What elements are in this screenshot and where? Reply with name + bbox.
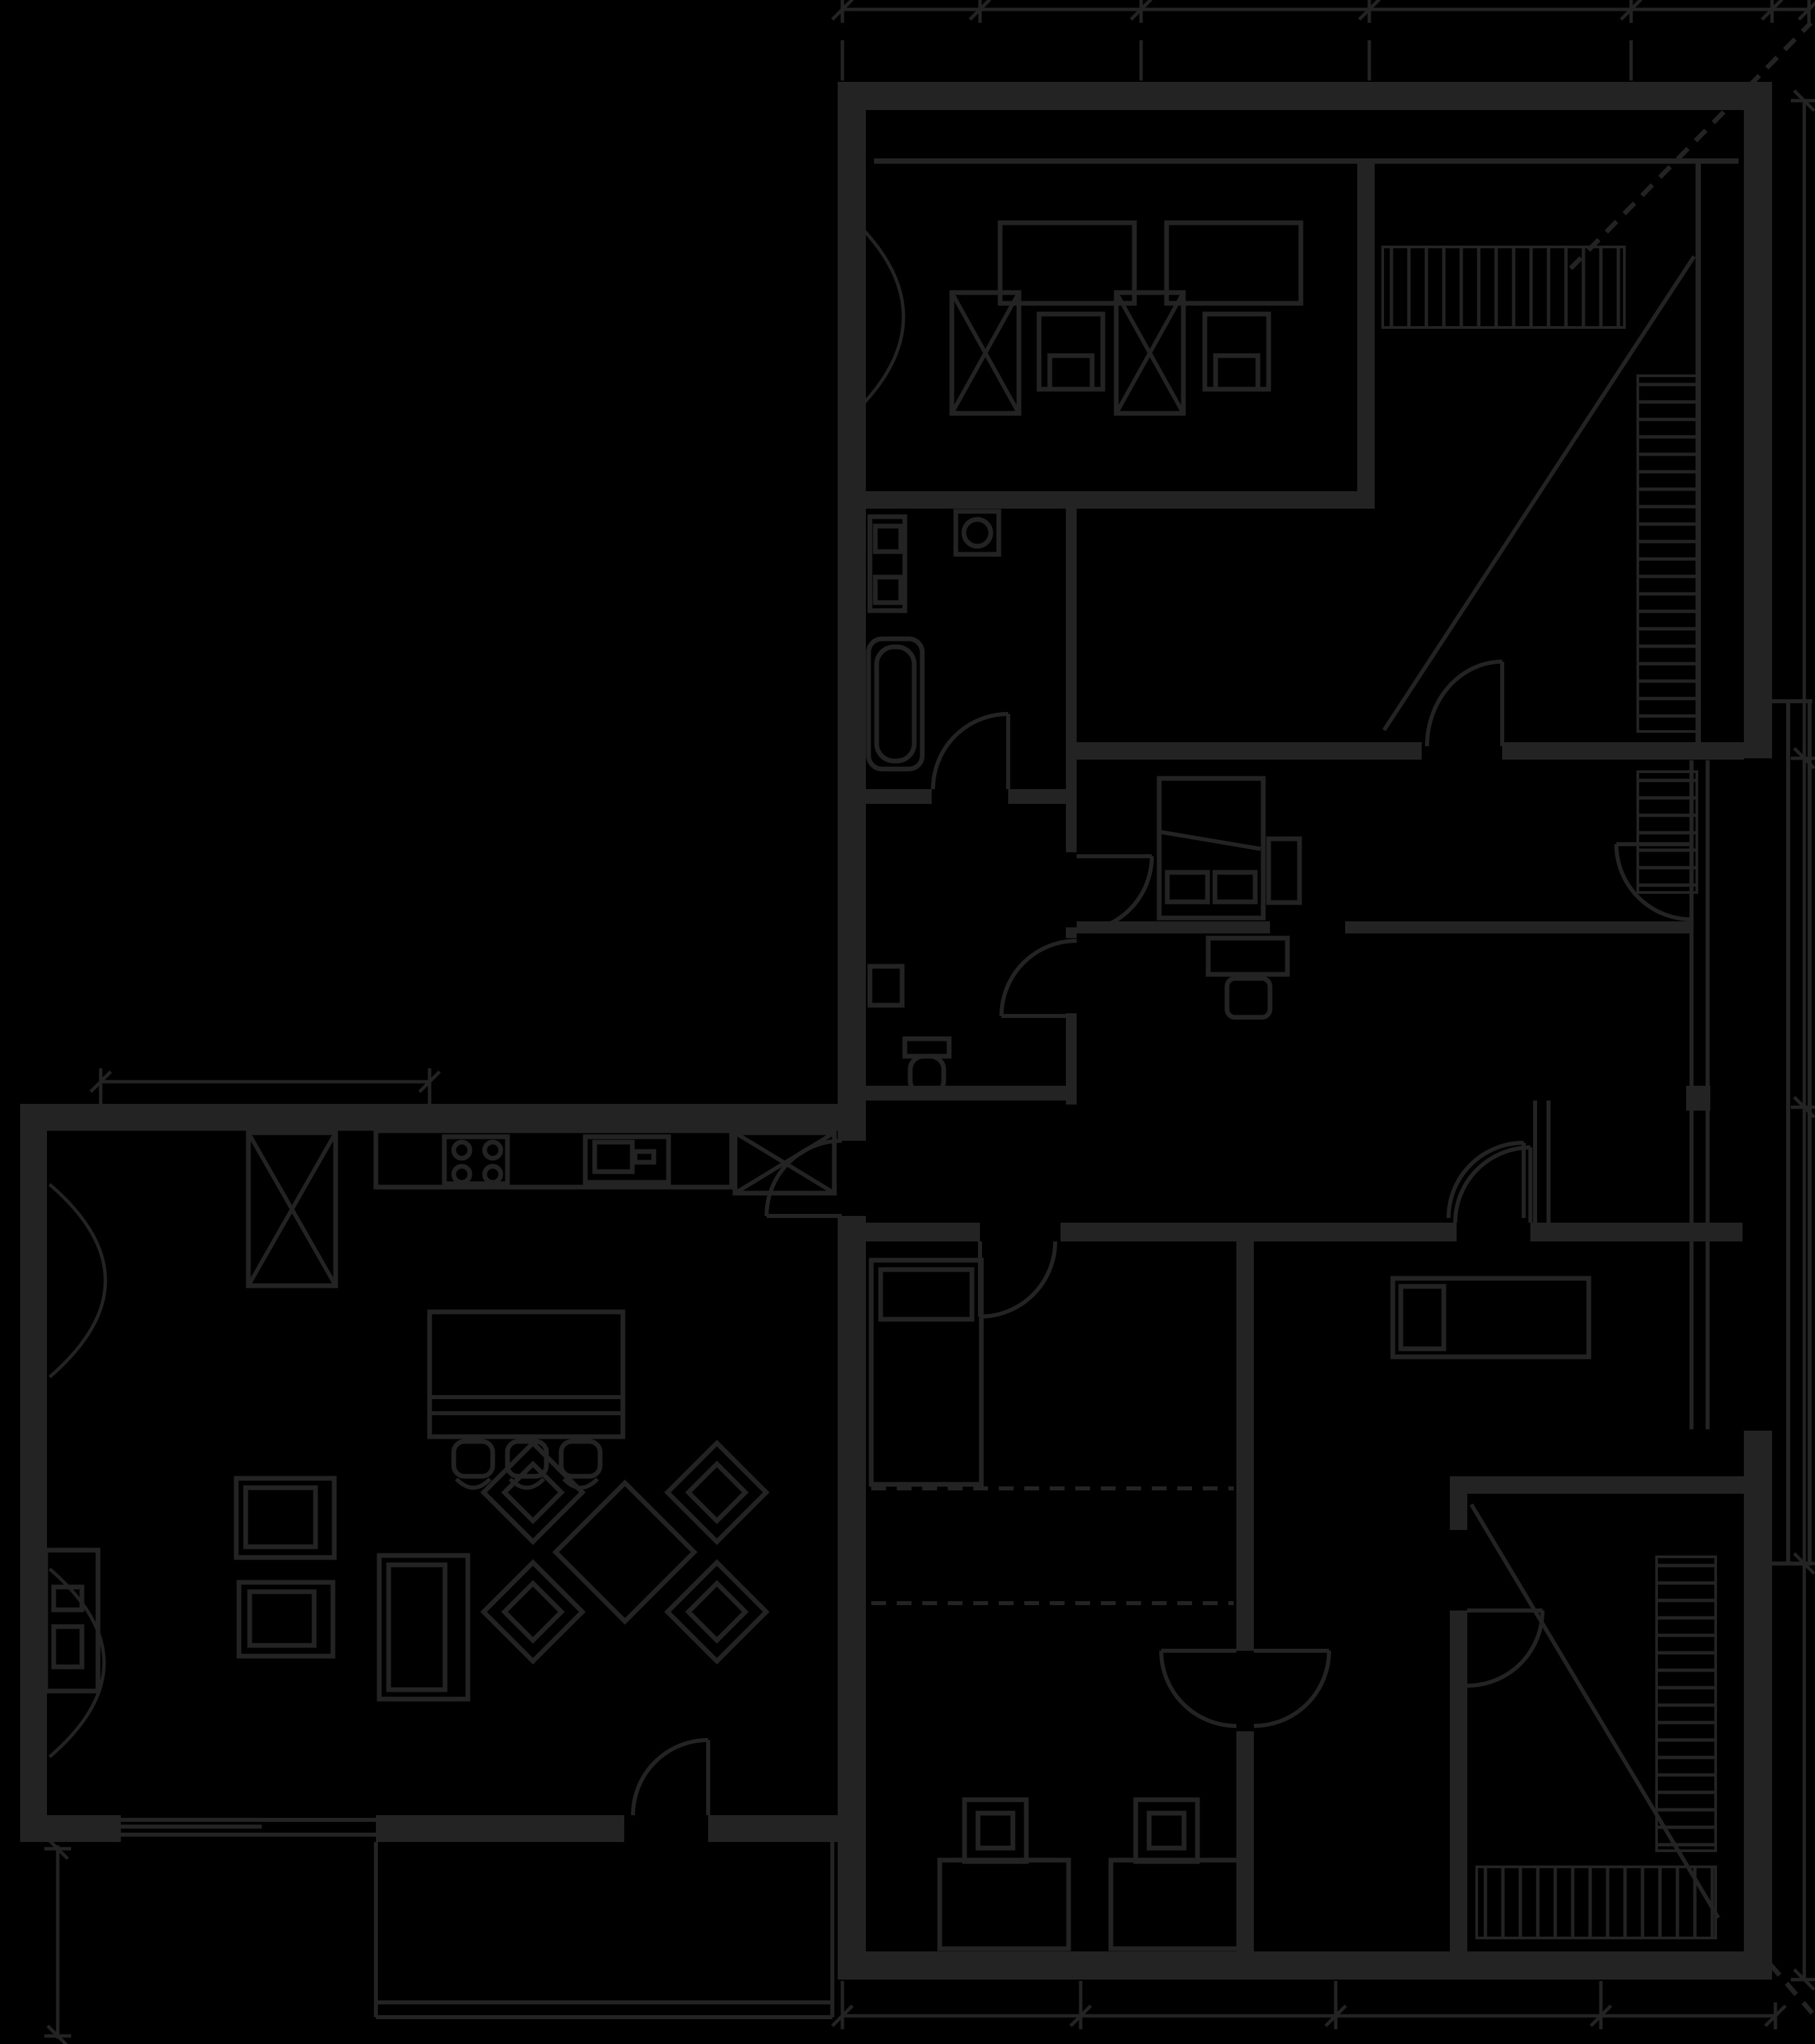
dining-chair-2 (667, 1443, 766, 1541)
bed-kid-left (871, 1260, 981, 1484)
sofa-seat (389, 1565, 445, 1690)
wall-rightwing-left-lower (838, 1216, 866, 1980)
kitchen-counter (376, 1131, 732, 1187)
sideboard-drawer-2 (54, 1627, 82, 1667)
bar-stool-3 (561, 1441, 600, 1476)
stool-study-1-seat (1050, 356, 1092, 389)
wc-sink (870, 966, 902, 1005)
wall-kids-divider-a (1236, 1241, 1254, 1651)
burner-1 (454, 1142, 470, 1158)
floor-plan-page (0, 0, 1815, 2044)
door-kid-left-arc (980, 1241, 1055, 1317)
chair-office (1227, 978, 1270, 1017)
bath-sink-1 (875, 526, 901, 552)
wall-leftwing-bottom-a (20, 1815, 121, 1842)
door-balcony-bedroom-arc (1616, 844, 1691, 919)
burner-2 (485, 1142, 501, 1158)
pillow-kid-right (1401, 1286, 1444, 1349)
bathtub-inner (877, 647, 914, 761)
kitchen-island (430, 1312, 623, 1437)
dining-chair-3 (483, 1562, 582, 1661)
wc-cistern (905, 1039, 949, 1056)
wall-bedroom-top (1077, 742, 1255, 760)
bed-master-blanket-fold (1161, 832, 1261, 849)
window-swing-living-1 (50, 1184, 105, 1377)
wall-kids-top-c (1530, 1223, 1743, 1241)
wall-wc-bottom (866, 1086, 1077, 1101)
wall-closet2-left-b (1450, 1611, 1467, 1951)
wardrobe-closet1-right (1638, 376, 1697, 731)
dining-chair-3-seat (505, 1584, 562, 1641)
wall-study-closet-divider (1357, 161, 1375, 491)
wall-rightwing-right-lower (1744, 1431, 1772, 1980)
wall-rightwing-right-upper (1744, 82, 1772, 758)
door-kid-right-arc (1455, 1147, 1530, 1223)
door-terrace-arc (633, 1740, 708, 1815)
pillow-master-2 (1215, 872, 1255, 902)
wall-closet2-top (1450, 1476, 1744, 1494)
door-master-arc (1077, 856, 1152, 931)
floor-plan-svg (0, 0, 1815, 2044)
pillow-kid-left (881, 1270, 972, 1319)
door-kids-divider-arc-a (1254, 1651, 1329, 1726)
wardrobe-closet1-top (1383, 247, 1624, 327)
door-closet2-arc (1467, 1611, 1542, 1686)
wall-bath-hall-a (866, 789, 932, 804)
wall-rightwing-left-upper (838, 82, 866, 1141)
chair-kid-1-seat (978, 1813, 1013, 1848)
wall-sanitary-right-b (1066, 927, 1077, 938)
door-wc-arc (1001, 941, 1077, 1016)
dining-chair-4 (667, 1562, 766, 1661)
burner-3 (454, 1166, 470, 1182)
desk-kid-2 (1111, 1860, 1240, 1949)
wall-leftwing-bottom-b (376, 1815, 624, 1842)
wall-leftwing-top (20, 1104, 838, 1131)
chair-kid-2 (1136, 1800, 1197, 1861)
burner-4 (485, 1166, 501, 1182)
wall-leftwing-bottom-c (708, 1815, 838, 1842)
desk-office (1208, 938, 1287, 974)
chair-kid-2-seat (1149, 1813, 1184, 1848)
washer-drum (964, 519, 991, 546)
window-swing-study (862, 228, 903, 405)
wall-kids-top-a (866, 1223, 980, 1241)
dining-chair-1 (483, 1443, 582, 1541)
dining-chair-4-seat (689, 1584, 746, 1641)
stool-study-2-seat (1216, 356, 1258, 389)
bar-stool-1-back (456, 1479, 490, 1488)
door-office-storage-arc (1449, 1143, 1524, 1218)
bar-stool-1 (454, 1441, 493, 1476)
wall-kids-top-b (1061, 1223, 1457, 1241)
wall-window-mullion-right (1686, 1086, 1710, 1111)
wall-sanitary-right-a (1066, 509, 1077, 852)
dining-chair-2-seat (689, 1464, 746, 1521)
pillow-master-1 (1167, 872, 1208, 902)
door-kids-divider-arc-b (1161, 1651, 1236, 1726)
chair-kid-1 (965, 1800, 1026, 1861)
sofa (379, 1555, 468, 1699)
wall-rightwing-top (838, 82, 1772, 110)
section-diagonal-topright (1571, 23, 1811, 268)
armchair-2-seat (250, 1592, 314, 1645)
wardrobe-closet2-bottom (1477, 1867, 1716, 1938)
bed-kid-right (1393, 1278, 1589, 1357)
bath-sink-2 (875, 577, 901, 603)
kitchen-faucet (635, 1152, 654, 1162)
wall-closet2-left-a (1450, 1494, 1467, 1530)
wall-bath-hall-b (1008, 789, 1067, 804)
desk-study-2 (1167, 223, 1301, 303)
wall-closet1-bottom-a (1255, 742, 1422, 760)
dining-table (556, 1483, 694, 1621)
door-bath-arc (933, 714, 1008, 789)
wall-closet1-bottom-b (1502, 742, 1744, 760)
wall-study-bottom (866, 491, 1375, 509)
door-entry-arc (767, 1141, 842, 1216)
desk-kid-1 (940, 1860, 1069, 1949)
kitchen-sink-basin (595, 1142, 632, 1172)
wall-bedroom-office-b (1345, 921, 1691, 933)
nightstand-master (1269, 839, 1299, 903)
armchair-1-seat (246, 1488, 315, 1547)
door-closet1-arc (1427, 662, 1502, 746)
